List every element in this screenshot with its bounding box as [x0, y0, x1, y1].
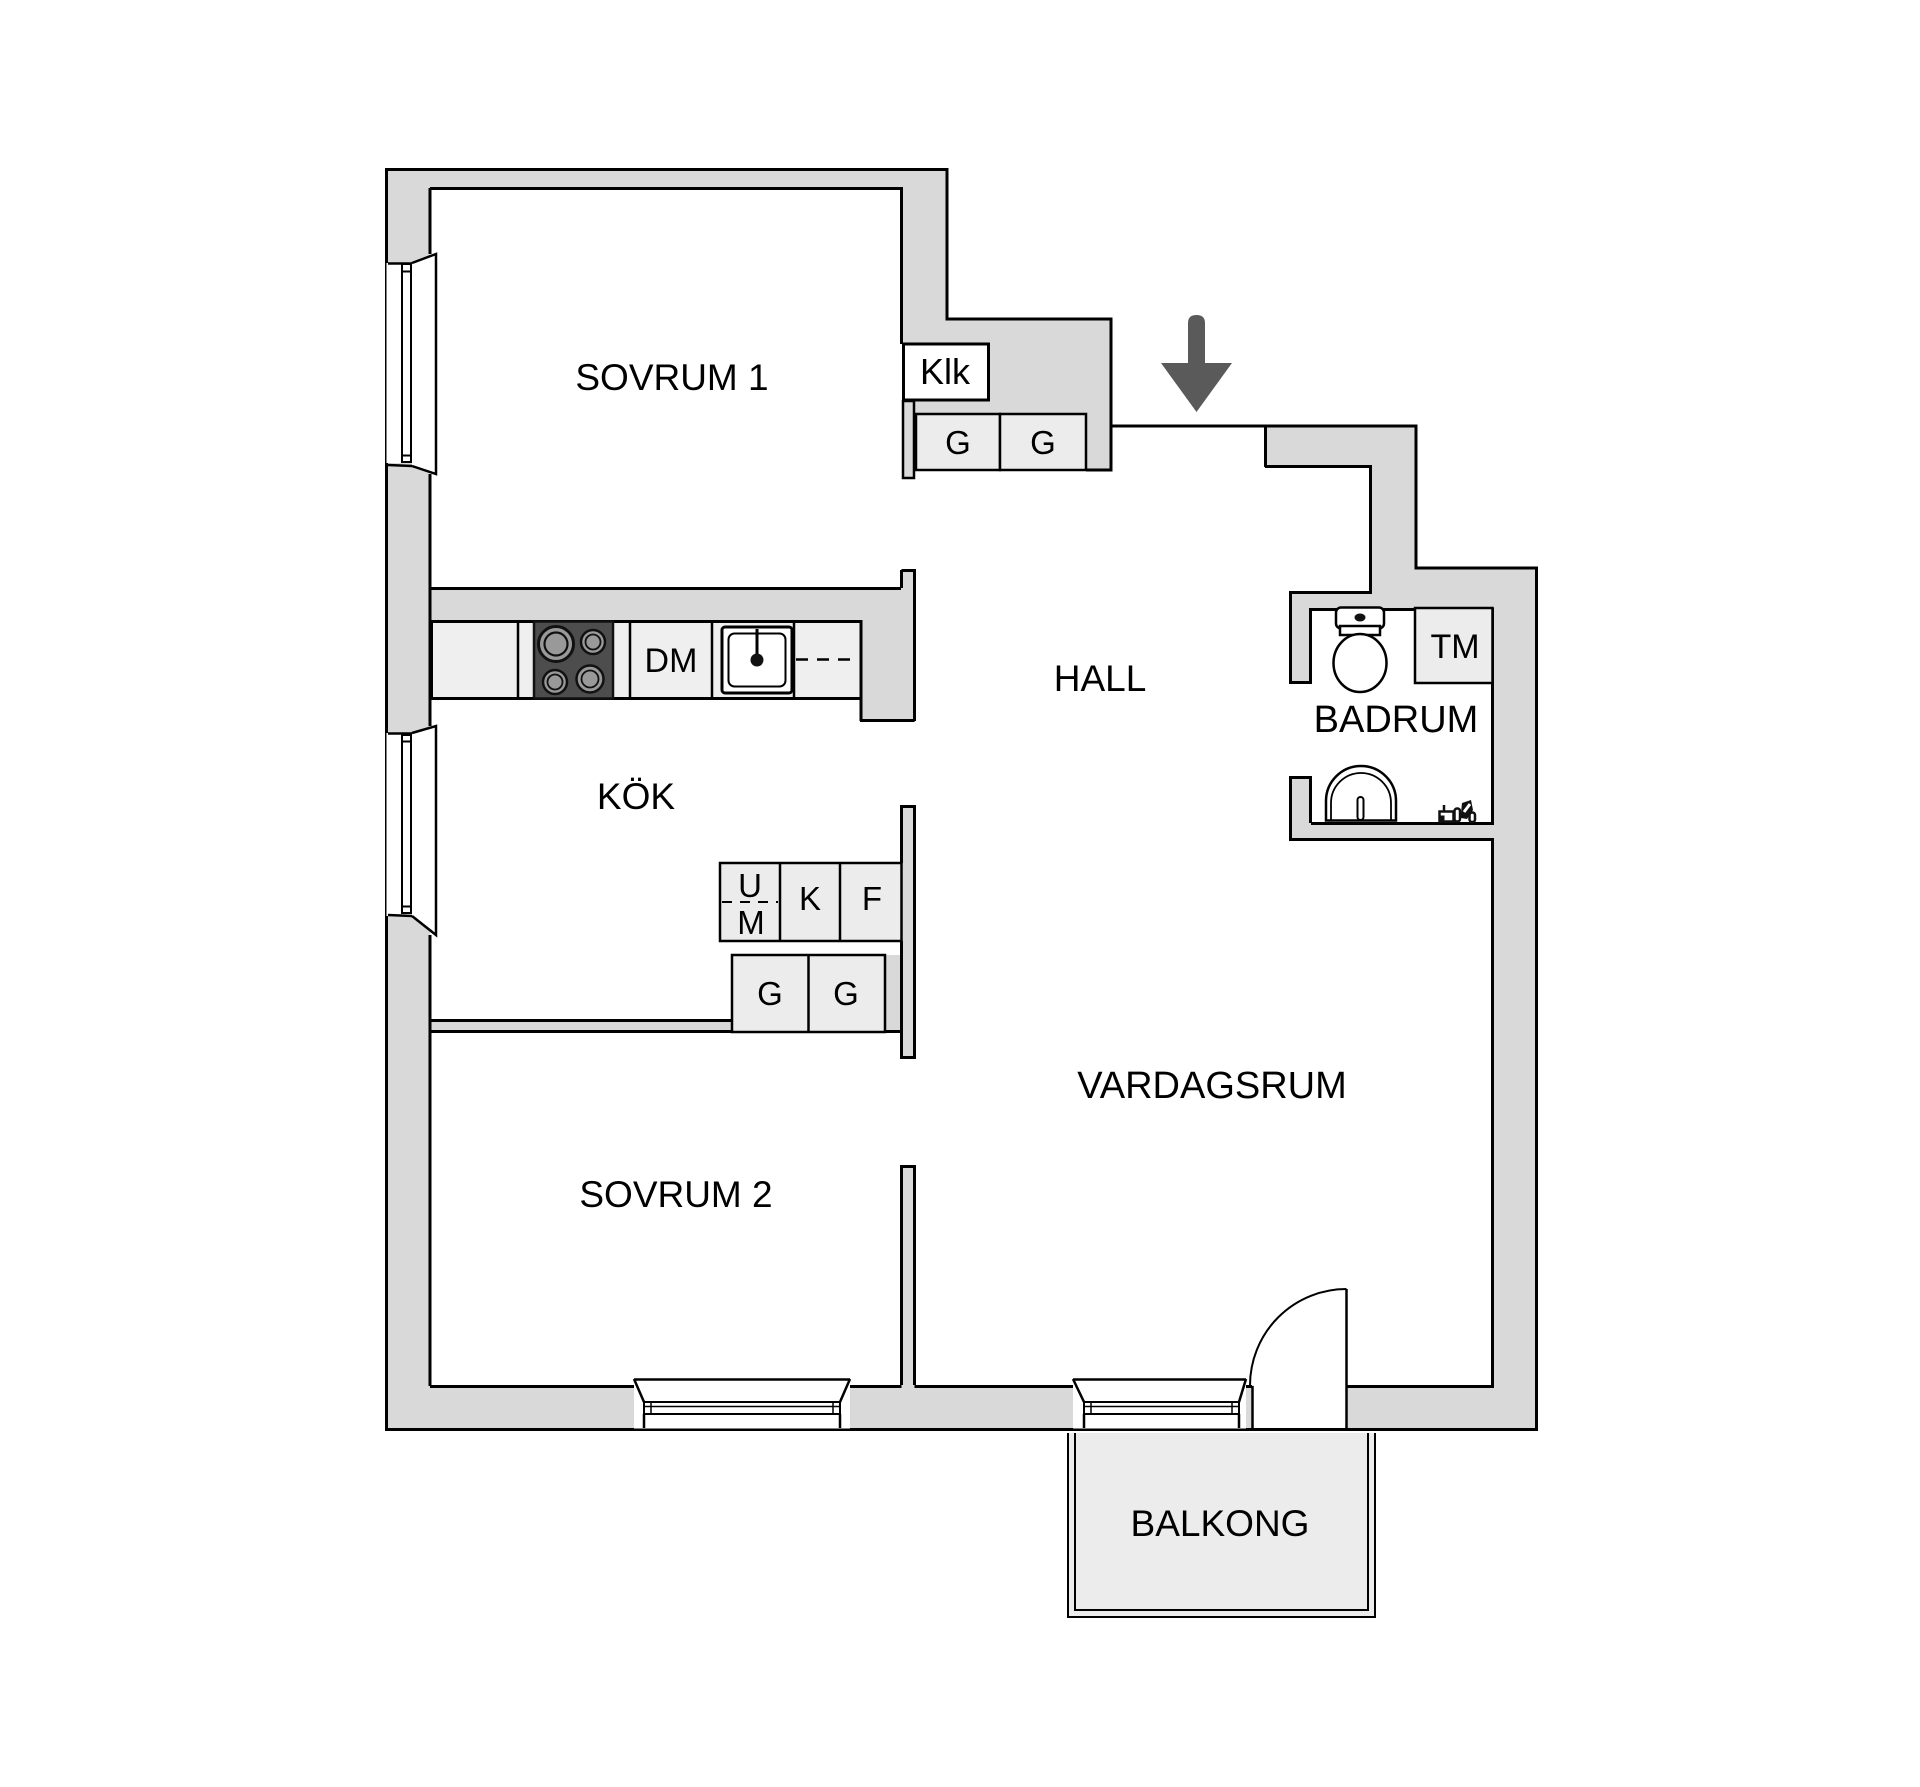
svg-text:KÖK: KÖK — [597, 776, 675, 817]
svg-text:K: K — [799, 880, 821, 917]
svg-text:HALL: HALL — [1054, 658, 1147, 699]
svg-text:SOVRUM 1: SOVRUM 1 — [575, 357, 768, 398]
svg-text:BADRUM: BADRUM — [1314, 699, 1479, 741]
svg-text:F: F — [862, 880, 882, 917]
svg-text:Klk: Klk — [920, 351, 971, 392]
svg-text:M: M — [737, 904, 765, 941]
svg-text:DM: DM — [645, 642, 698, 680]
svg-text:TM: TM — [1430, 628, 1479, 666]
svg-text:BALKONG: BALKONG — [1131, 1503, 1310, 1544]
svg-text:G: G — [945, 424, 971, 461]
svg-text:U: U — [738, 867, 762, 904]
svg-text:SOVRUM 2: SOVRUM 2 — [579, 1174, 772, 1215]
svg-text:VARDAGSRUM: VARDAGSRUM — [1077, 1065, 1347, 1107]
svg-text:G: G — [757, 975, 783, 1012]
svg-text:G: G — [1030, 424, 1056, 461]
svg-text:G: G — [833, 975, 859, 1012]
